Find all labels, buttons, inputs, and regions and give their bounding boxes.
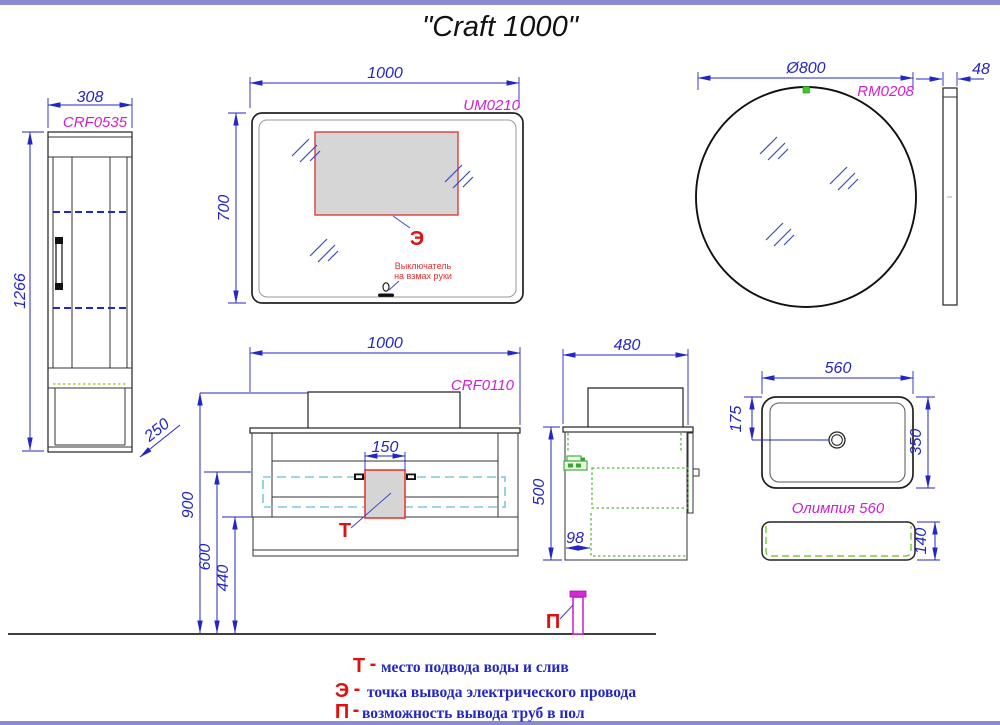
legend-marker: Э: [335, 680, 349, 702]
legend-text: возможность вывода труб в пол: [362, 705, 585, 722]
legend-sep: -: [353, 699, 360, 721]
cabinet-label: CRF0535: [63, 114, 128, 131]
drawer-inner-line: [591, 513, 686, 556]
basin-label: Олимпия 560: [792, 500, 885, 517]
water-marker: Т: [339, 520, 351, 542]
hanger-mark: [803, 87, 810, 94]
round-mirror-diameter-dim: Ø800: [785, 60, 825, 77]
legend-sep: -: [370, 653, 377, 675]
door-handle-icon: [55, 237, 63, 290]
switch-note-line1: Выключатель: [395, 261, 452, 271]
cabinet-depth-dim: 250: [141, 415, 173, 446]
drain-offset-dim: 175: [728, 406, 745, 433]
basin-width-dim: 560: [825, 360, 852, 377]
vanity-depth-dim: 480: [614, 337, 641, 354]
drawing-page: "Craft 1000" 308 CRF0535 1266: [0, 0, 1000, 725]
round-mirror-depth-dim: 48: [972, 61, 990, 78]
legend-marker: П: [335, 701, 349, 723]
page-title: "Craft 1000": [422, 11, 580, 43]
legend-text: место подвода воды и слив: [381, 659, 569, 676]
floor-pipe-icon: [560, 591, 586, 634]
basin-top-view: 560 175 350 Олимпия 560: [728, 360, 935, 517]
pipe-marker: П: [546, 611, 560, 633]
height-600-dim: 600: [197, 544, 214, 571]
backlight-zone: [315, 132, 458, 215]
height-900-dim: 900: [180, 492, 197, 519]
offset-98-dim: 98: [566, 530, 584, 547]
mirror-width-dim: 1000: [367, 65, 403, 82]
height-440-dim: 440: [215, 565, 232, 592]
cabinet-height-dim: 1266: [12, 273, 29, 309]
vanity-width-dim: 1000: [367, 335, 403, 352]
mirror-view: 1000 UM0210 Э Выключатель на взмах руки …: [216, 65, 523, 303]
drawer-inner-line: [592, 468, 688, 508]
basin-side-view: 140: [762, 522, 940, 560]
mirror-height-dim: 700: [216, 195, 233, 222]
legend-text: точка вывода электрического провода: [367, 684, 636, 701]
legend: Т - место подвода воды и слив Э - точка …: [335, 653, 637, 723]
round-mirror-label: RM0208: [857, 83, 914, 100]
side-handle-icon: [693, 469, 699, 476]
siphon-icon: [564, 456, 587, 470]
basin-height-dim: 140: [913, 528, 930, 555]
top-border: [0, 0, 1000, 5]
legend-sep: -: [354, 678, 361, 700]
vanity-side-view: 480 98 500: [531, 337, 699, 560]
legend-marker: Т: [353, 655, 365, 677]
electric-marker: Э: [410, 228, 424, 250]
basin-depth-dim: 350: [908, 429, 925, 456]
cabinet-width-dim: 308: [77, 89, 104, 106]
vanity-height-dim: 500: [531, 479, 548, 506]
mirror-label: UM0210: [463, 97, 520, 114]
round-mirror-view: Ø800 RM0208 48: [696, 60, 990, 307]
drawing-canvas: "Craft 1000" 308 CRF0535 1266: [0, 0, 1000, 725]
tall-cabinet-view: 308 CRF0535 1266 250: [12, 89, 180, 457]
vanity-front-view: 1000 CRF0110 150 Т 900 600: [180, 335, 520, 633]
switch-note-line2: на взмах руки: [394, 271, 452, 281]
drain-width-dim: 150: [372, 439, 399, 456]
